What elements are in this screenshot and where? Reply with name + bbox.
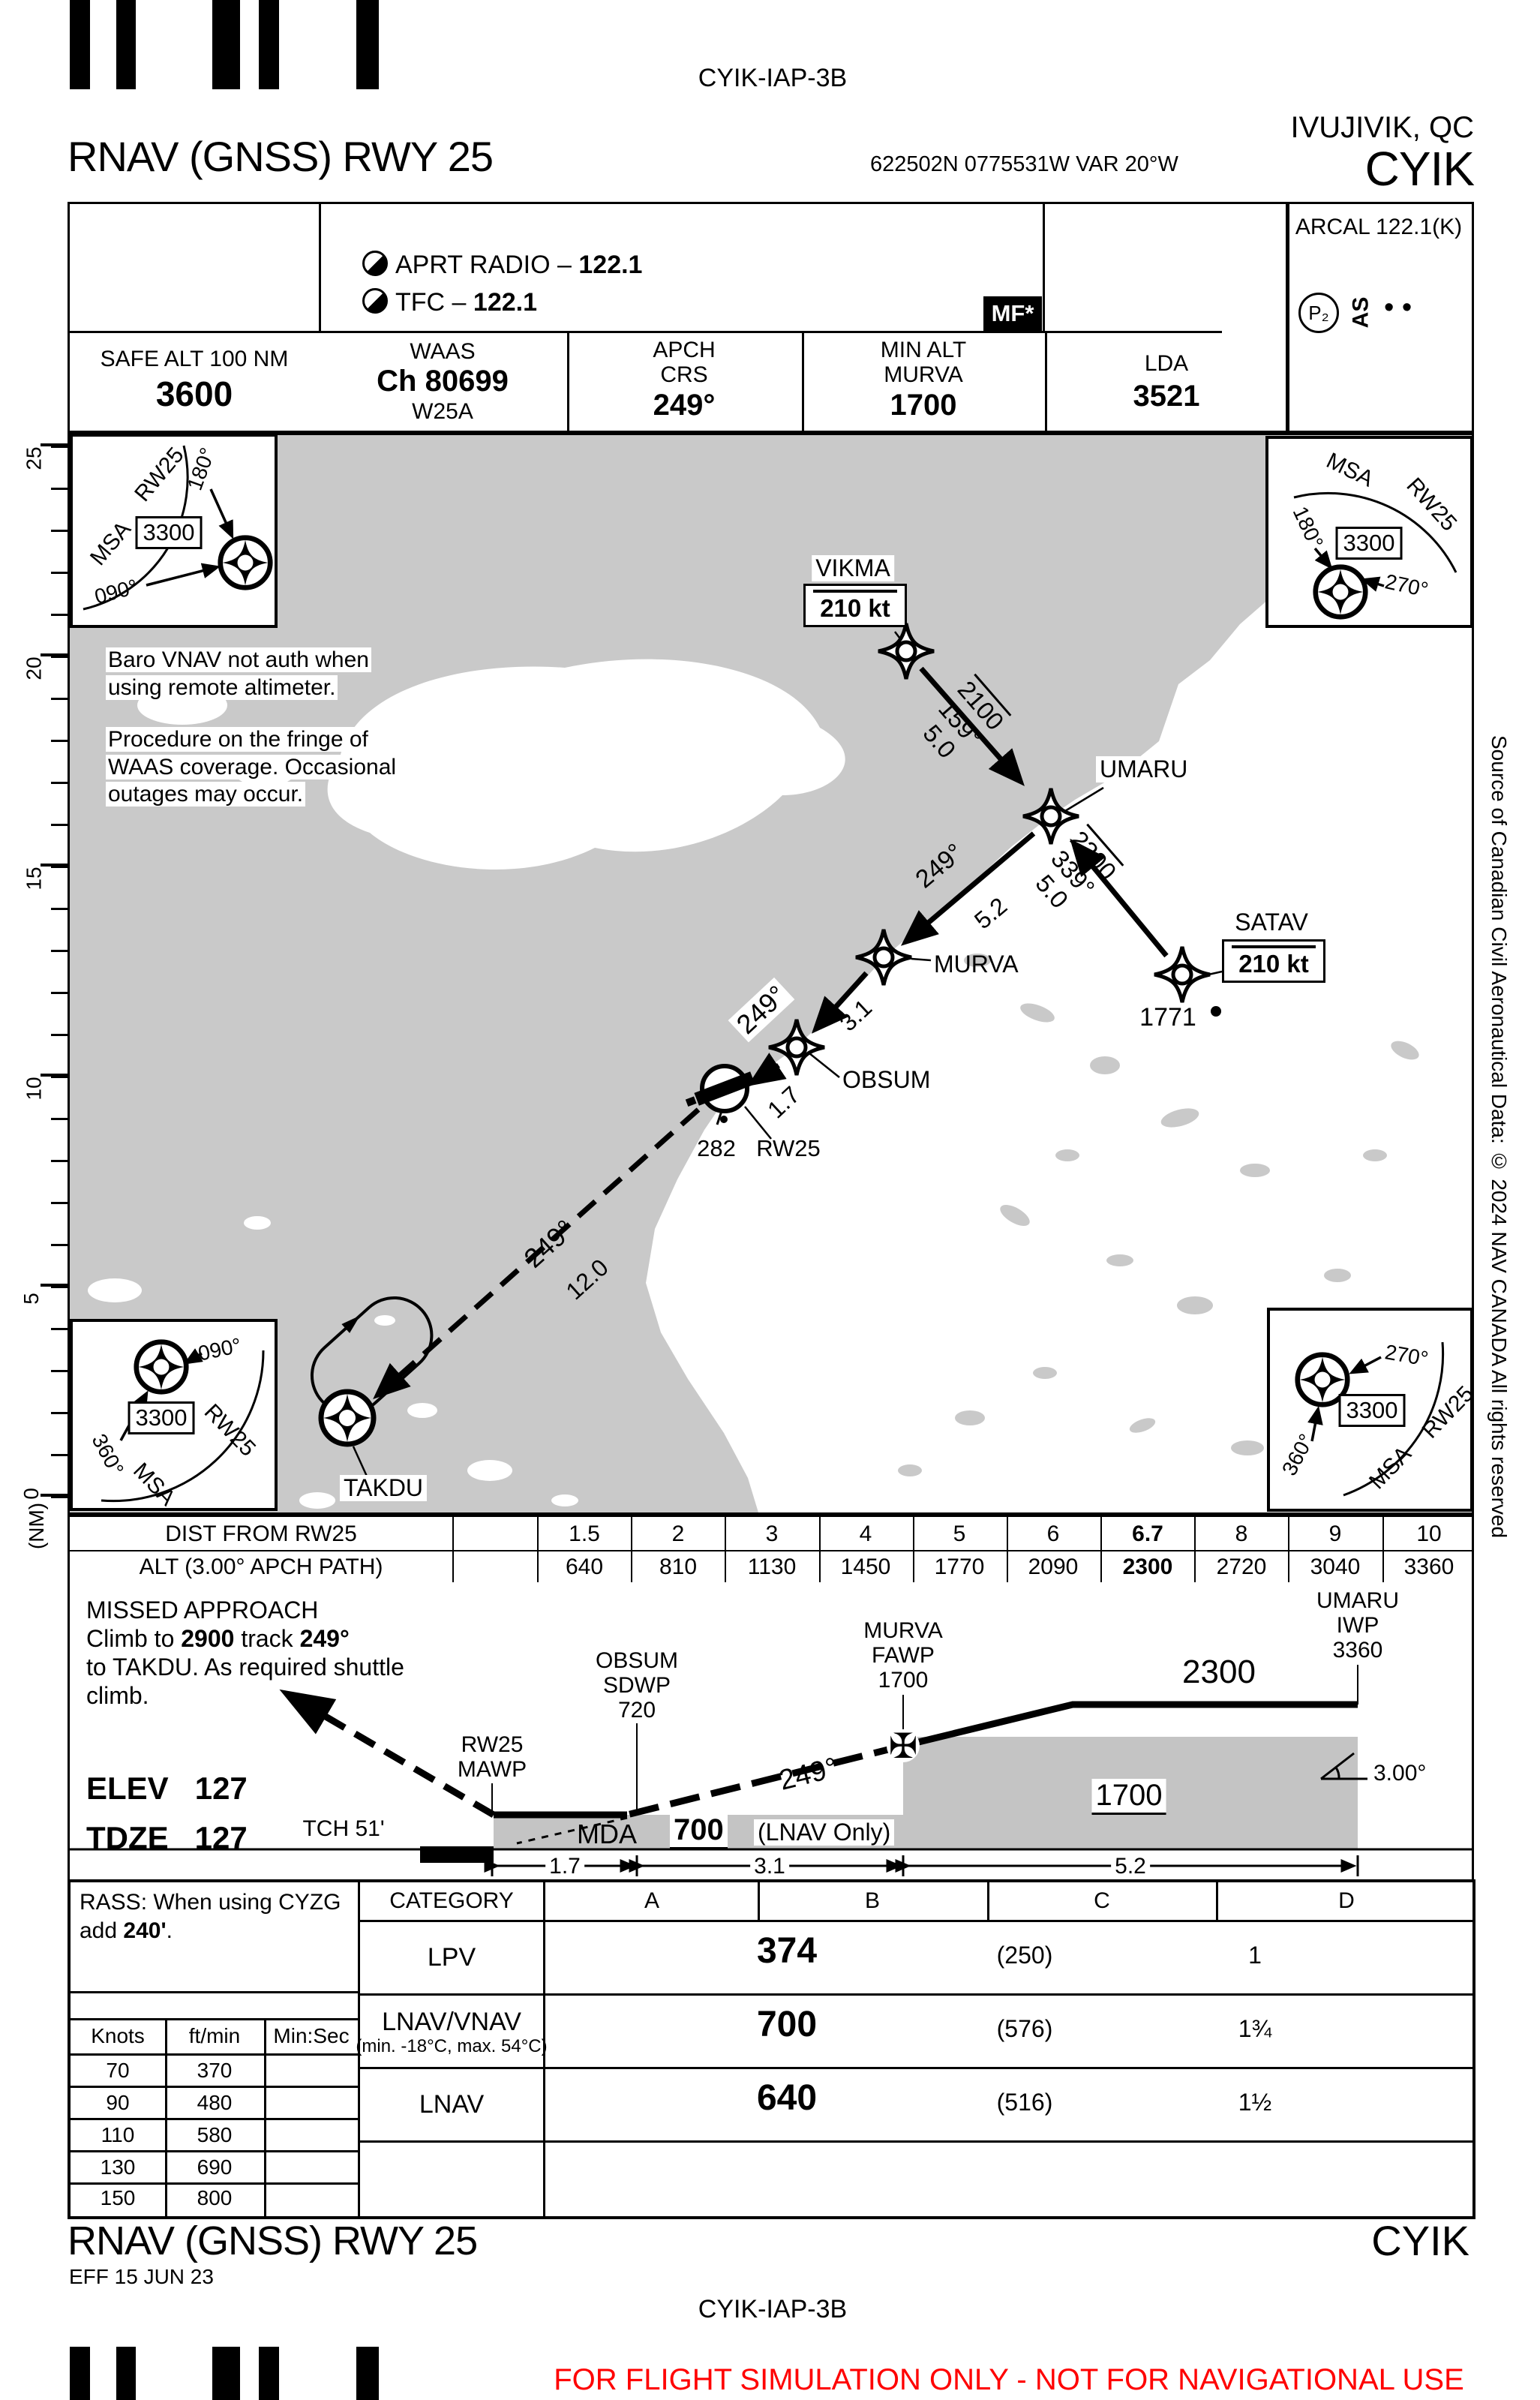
dist-cell: 5 [953, 1521, 966, 1546]
speed-cell: 130 [101, 2156, 136, 2179]
category-header: CATEGORY [389, 1888, 514, 1913]
dist-cell: 10 [1416, 1521, 1441, 1546]
waas-label: WAAS [410, 339, 475, 364]
mda-value: 700 [670, 1813, 728, 1849]
note-waas-coverage: Procedure on the fringe ofWAAS coverage.… [106, 726, 398, 809]
waypoint-takdu-icon [321, 1392, 374, 1444]
profile-umaru-label: UMARU [1316, 1588, 1399, 1613]
profile-murva-label: MURVA [863, 1618, 943, 1643]
speed-restriction-bar [813, 590, 897, 593]
dist-cell: 2 [672, 1521, 685, 1546]
approach-chart-page: CYIK-IAP-3B IVUJIVIK, QC RNAV (GNSS) RWY… [0, 0, 1540, 2400]
dist-row-label: DIST FROM RW25 [165, 1521, 357, 1546]
lpv-hat: (250) [997, 1942, 1053, 1969]
waypoint-label-vikma: VIKMA [812, 555, 894, 581]
nm-scale-0: 0 [20, 1488, 44, 1500]
profile-dist-2: 3.1 [750, 1854, 789, 1879]
profile-murva-alt: 1700 [878, 1668, 929, 1693]
apch-crs-label: APCH [653, 338, 715, 362]
profile-1700: 1700 [1092, 1779, 1166, 1815]
waypoint-label-takdu: TAKDU [340, 1475, 427, 1501]
rate-cell: 580 [197, 2124, 233, 2147]
header-info-table: APRT RADIO – 122.1 TFC – 122.1 MF* ARCAL… [68, 202, 1474, 433]
rw25-threshold-label: RW25 [756, 1136, 821, 1161]
lda-value: 3521 [1133, 380, 1200, 413]
nm-scale-15: 15 [23, 867, 47, 890]
profile-2300: 2300 [1182, 1654, 1256, 1690]
msa-bl-alt: 3300 [128, 1401, 195, 1434]
p2-lighting-icon: P₂ [1298, 293, 1339, 333]
nm-scale-25: 25 [23, 446, 47, 470]
profile-sdwp-label: SDWP [603, 1673, 671, 1698]
alt-cell: 1450 [841, 1554, 891, 1579]
distance-table: DIST FROM RW25 ALT (3.00° APCH PATH) 1.5… [68, 1515, 1474, 1587]
angle-value: 3.00° [1373, 1761, 1426, 1786]
speed-cell: 110 [101, 2124, 135, 2147]
dist-cell-mapt: 6.7 [1132, 1521, 1163, 1546]
lnav-hat: (516) [997, 2089, 1053, 2116]
rate-cell: 370 [197, 2059, 233, 2083]
profile-obsum-alt: 720 [618, 1698, 656, 1723]
lpv-vis: 1 [1248, 1942, 1262, 1969]
note-baro-vnav: Baro VNAV not auth whenusing remote alti… [106, 647, 371, 701]
footer-icao: CYIK [1371, 2218, 1469, 2264]
missed-approach-line3: to TAKDU. As required shuttle [86, 1654, 404, 1681]
dist-cell: 1.5 [569, 1521, 600, 1546]
mandatory-frequency-icon [362, 288, 388, 314]
icao-code: CYIK [1365, 143, 1474, 195]
comm-line-tfc: TFC – 122.1 [362, 288, 537, 317]
nm-scale-unit: (NM) [25, 1503, 49, 1549]
waas-id: W25A [412, 399, 473, 424]
lnav-vnav-hat: (576) [997, 2016, 1053, 2042]
lnav-only-label: (LNAV Only) [754, 1819, 894, 1846]
missed-approach-line4: climb. [86, 1683, 149, 1709]
apch-crs-label2: CRS [660, 362, 707, 387]
rass-note-2: add 240'. [80, 1918, 173, 1943]
cat-c-header: C [1094, 1888, 1110, 1913]
spot-elevation-dot-1771 [1211, 1006, 1221, 1017]
lnav-vnav-vis: 1¾ [1238, 2016, 1271, 2042]
dist-cell: 6 [1047, 1521, 1060, 1546]
ftmin-header: ft/min [189, 2025, 240, 2048]
profile-faf-icon: ✠ [889, 1727, 918, 1765]
msa-tl-alt: 3300 [136, 516, 203, 549]
rate-cell: 690 [197, 2156, 233, 2179]
footer-procedure-title: RNAV (GNSS) RWY 25 [68, 2219, 477, 2263]
mf-badge: MF* [983, 296, 1042, 331]
profile-rw25-label: RW25 [461, 1732, 524, 1757]
spot-elevation-dot-282 [720, 1116, 728, 1123]
profile-path-descent [627, 1746, 903, 1815]
mda-label: MDA [577, 1819, 637, 1849]
minima-table: RASS: When using CYZG add 240'. Knots ft… [68, 1879, 1475, 2219]
city-name: IVUJIVIK, QC [1291, 111, 1475, 144]
barcode-bottom [68, 2347, 383, 2400]
knots-header: Knots [91, 2025, 145, 2048]
simulation-warning: FOR FLIGHT SIMULATION ONLY - NOT FOR NAV… [554, 2363, 1464, 2396]
msa-tr-alt: 3300 [1336, 527, 1403, 560]
nm-scale-ticks [51, 443, 68, 1498]
lighting-dots: • • [1384, 293, 1412, 324]
alt-cell: 3040 [1310, 1554, 1361, 1579]
mandatory-frequency-icon [362, 251, 388, 276]
effective-date: EFF 15 JUN 23 [69, 2266, 214, 2289]
minsec-header: Min:Sec [273, 2025, 349, 2048]
nm-scale-20: 20 [23, 656, 47, 680]
min-alt-fix: MURVA [884, 362, 963, 387]
nm-scale-5: 5 [20, 1293, 44, 1305]
apch-crs-value: 249° [653, 389, 716, 422]
vikma-speed-box: 210 kt [803, 584, 907, 627]
island-shape [328, 659, 845, 870]
spot-elevation-1771: 1771 [1139, 1004, 1196, 1032]
lnav-vnav-label: LNAV/VNAV [382, 2008, 521, 2036]
profile-view: MISSED APPROACH Climb to 2900 track 249°… [68, 1582, 1474, 1879]
dist-cell: 9 [1329, 1521, 1342, 1546]
msa-br-alt: 3300 [1339, 1394, 1406, 1427]
profile-umaru-alt: 3360 [1333, 1638, 1383, 1663]
speed-cell: 70 [106, 2059, 129, 2083]
waypoint-label-satav: SATAV [1235, 909, 1308, 936]
arcal-info: ARCAL 122.1(K) [1295, 215, 1462, 239]
waas-channel: Ch 80699 [377, 365, 509, 398]
profile-obsum-label: OBSUM [596, 1648, 678, 1673]
nm-scale-10: 10 [23, 1077, 47, 1100]
lnav-vnav-temp-limits: (min. -18°C, max. 54°C) [356, 2037, 547, 2056]
alt-cell: 2720 [1217, 1554, 1267, 1579]
alt-cell: 3360 [1404, 1554, 1454, 1579]
safe-alt-label: SAFE ALT 100 NM [101, 347, 289, 371]
safe-alt-value: 3600 [156, 375, 233, 413]
comm-line-aprt: APRT RADIO – 122.1 [362, 251, 642, 279]
dist-cell: 8 [1235, 1521, 1248, 1546]
cat-d-header: D [1338, 1888, 1355, 1913]
speed-cell: 150 [101, 2187, 136, 2210]
tch-label: TCH 51' [302, 1816, 384, 1841]
profile-dist-3: 5.2 [1111, 1854, 1150, 1879]
chart-code-bottom: CYIK-IAP-3B [698, 2296, 847, 2323]
alt-cell-mapt: 2300 [1123, 1554, 1173, 1579]
cat-b-header: B [865, 1888, 880, 1913]
min-alt-value: 1700 [890, 389, 957, 422]
alt-cell: 810 [659, 1554, 697, 1579]
waypoint-label-obsum: OBSUM [842, 1067, 930, 1093]
lnav-mda: 640 [757, 2079, 817, 2119]
satav-speed-box: 210 kt [1222, 939, 1325, 983]
alt-cell: 1130 [748, 1554, 797, 1579]
alt-cell: 1770 [935, 1554, 985, 1579]
barcode-top [68, 0, 383, 89]
waypoint-label-murva: MURVA [934, 951, 1019, 978]
rate-cell: 480 [197, 2092, 233, 2115]
lpv-label: LPV [428, 1944, 476, 1972]
procedure-title: RNAV (GNSS) RWY 25 [68, 134, 493, 180]
missed-approach-title: MISSED APPROACH [86, 1597, 318, 1624]
plan-view: MSA RW25 3300 180° 090° MSA RW25 3300 18… [68, 433, 1474, 1515]
lpv-da: 374 [757, 1932, 817, 1972]
speed-cell: 90 [106, 2092, 129, 2115]
cat-a-header: A [644, 1888, 659, 1913]
rass-note-1: RASS: When using CYZG [80, 1890, 341, 1915]
rate-cell: 800 [197, 2187, 233, 2210]
alt-row-label: ALT (3.00° APCH PATH) [140, 1554, 383, 1579]
profile-mawp-label: MAWP [458, 1757, 527, 1782]
dist-cell: 4 [860, 1521, 872, 1546]
min-alt-label: MIN ALT [881, 338, 966, 362]
profile-fawp-label: FAWP [872, 1643, 935, 1668]
source-note: Source of Canadian Civil Aeronautical Da… [1487, 735, 1511, 1726]
spot-elevation-282: 282 [697, 1136, 736, 1161]
dist-cell: 3 [766, 1521, 779, 1546]
chart-code-top: CYIK-IAP-3B [698, 65, 847, 92]
tdze-label: TDZE 127 [86, 1821, 248, 1855]
waypoint-label-umaru: UMARU [1096, 756, 1191, 782]
speed-restriction-bar [1232, 945, 1316, 948]
alt-cell: 2090 [1028, 1554, 1079, 1579]
airport-coordinates: 622502N 0775531W VAR 20°W [870, 153, 1178, 177]
elev-label: ELEV 127 [86, 1771, 248, 1806]
lnav-label: LNAV [419, 2091, 484, 2119]
profile-dist-1: 1.7 [545, 1854, 584, 1879]
as-lighting-label: AS [1348, 297, 1373, 329]
lnav-vnav-da: 700 [757, 2005, 817, 2045]
alt-cell: 640 [566, 1554, 603, 1579]
missed-approach-line2: Climb to 2900 track 249° [86, 1626, 350, 1652]
lnav-vis: 1½ [1238, 2089, 1271, 2116]
profile-iwp-label: IWP [1337, 1613, 1379, 1638]
lda-label: LDA [1145, 351, 1188, 376]
